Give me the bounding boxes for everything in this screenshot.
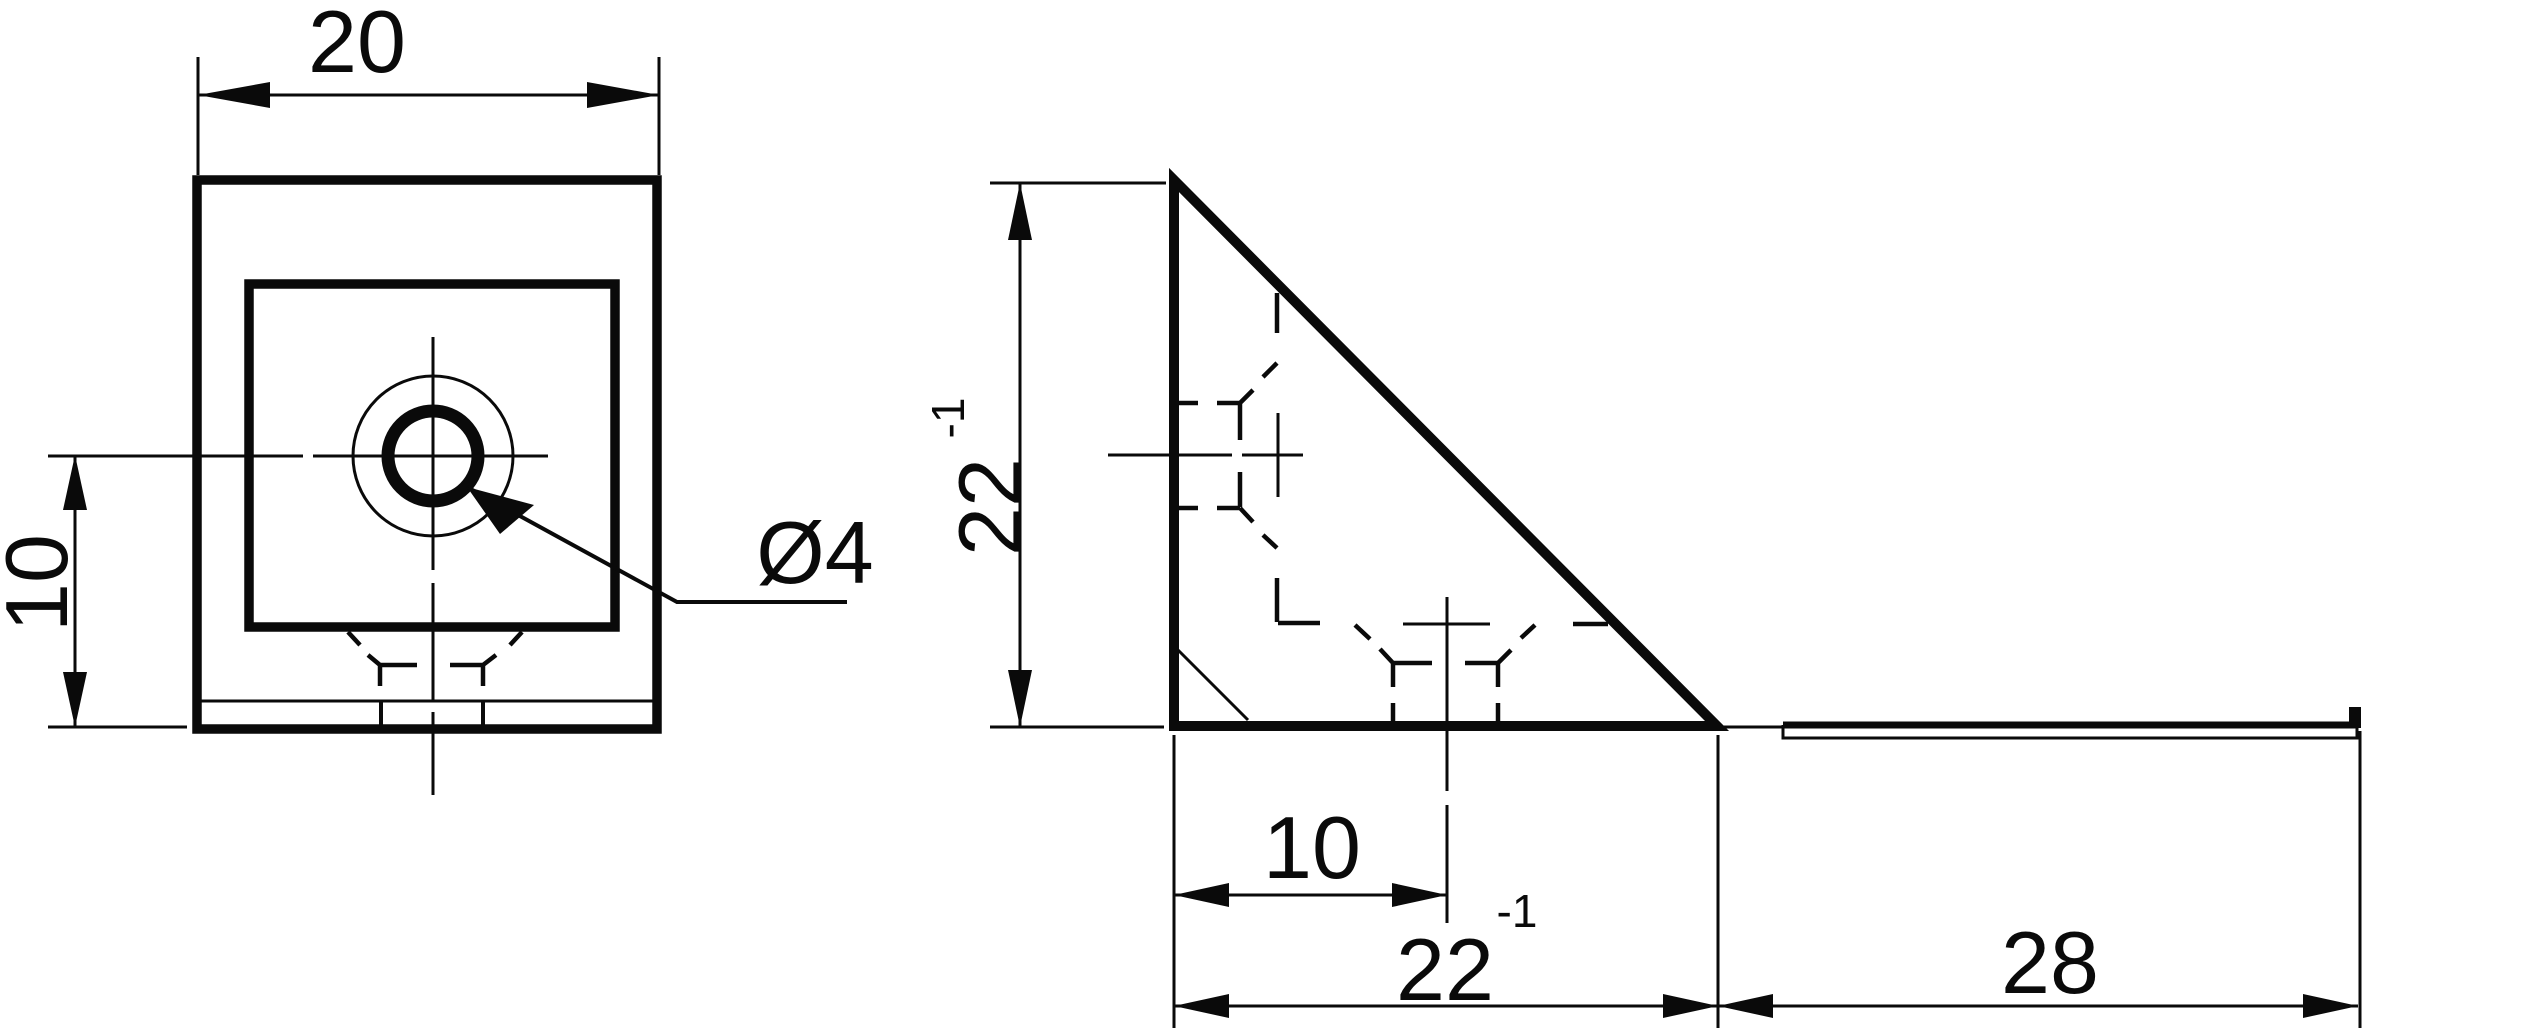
- dim-front-width-extensions: [198, 57, 659, 175]
- side-hidden-base-hole: [1355, 624, 1608, 724]
- side-hidden-wall-hole: [1178, 293, 1320, 623]
- dim-text-side-base-depth: 22: [1396, 920, 1494, 1019]
- dim-arrow-up-icon: [63, 455, 87, 510]
- dim-arrow-left-icon: [198, 82, 270, 108]
- dim-text-front-width: 20: [308, 0, 406, 91]
- dim-exponent-side-base-depth: -1: [1497, 885, 1538, 937]
- technical-drawing-canvas: 20 10 Ø4 22 -1: [0, 0, 2546, 1034]
- front-view: [48, 180, 657, 795]
- side-corner-fillet-line: [1176, 648, 1248, 720]
- dim-arrow-right-icon: [587, 82, 659, 108]
- dim-arrow-up-icon: [1008, 183, 1032, 240]
- dim-text-side-hole-offset: 10: [1263, 798, 1361, 897]
- dim-arrow-right-icon: [2303, 994, 2358, 1018]
- technical-drawing-page: 20 10 Ø4 22 -1: [0, 0, 2546, 1034]
- leader-arrow-icon: [467, 487, 534, 534]
- dim-arrow-left-icon: [1174, 994, 1229, 1018]
- dim-arrow-left-icon: [1174, 883, 1229, 907]
- dim-arrow-down-icon: [63, 672, 87, 727]
- leader-hole-diameter: Ø4: [467, 487, 874, 602]
- dim-front-hole-height: 10: [0, 455, 187, 727]
- front-hidden-countersink-right: [450, 632, 522, 686]
- dim-side-plate-length: 28: [1718, 913, 2358, 1018]
- dim-arrow-down-icon: [1008, 670, 1032, 727]
- dim-exponent-side-height: -1: [922, 398, 974, 439]
- hole-diameter-label: Ø4: [756, 503, 873, 602]
- side-plate-end-lip: [2349, 707, 2361, 728]
- dim-arrow-left-icon: [1718, 994, 1773, 1018]
- dim-side-hole-offset: 10: [1174, 798, 1447, 907]
- dim-arrow-right-icon: [1392, 883, 1447, 907]
- dim-text-side-height: 22: [940, 458, 1039, 556]
- dim-text-front-hole-height: 10: [0, 534, 86, 632]
- front-hidden-countersink-left: [348, 632, 417, 686]
- dim-text-side-plate-length: 28: [2001, 913, 2099, 1012]
- dim-front-width: 20: [198, 0, 659, 175]
- dim-arrow-right-icon: [1663, 994, 1718, 1018]
